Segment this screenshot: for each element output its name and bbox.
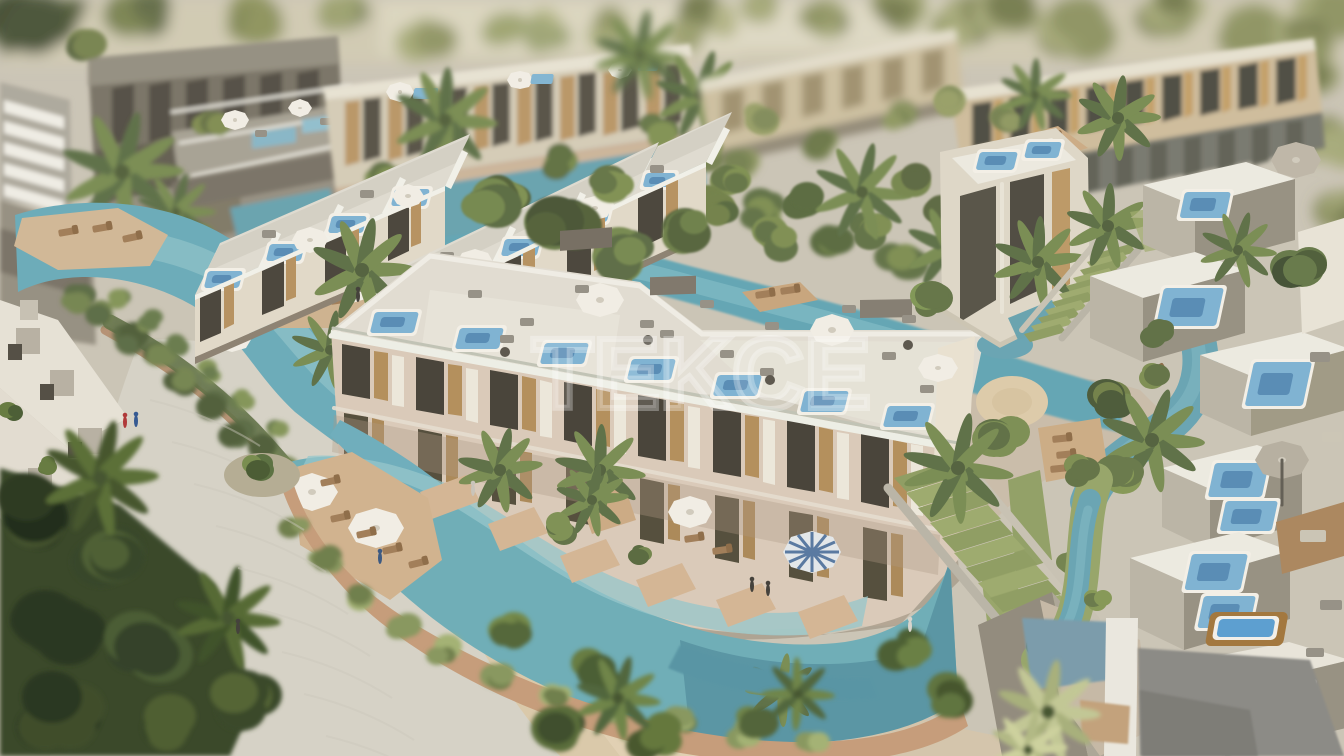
svg-text:TEKCE: TEKCE bbox=[532, 318, 871, 430]
